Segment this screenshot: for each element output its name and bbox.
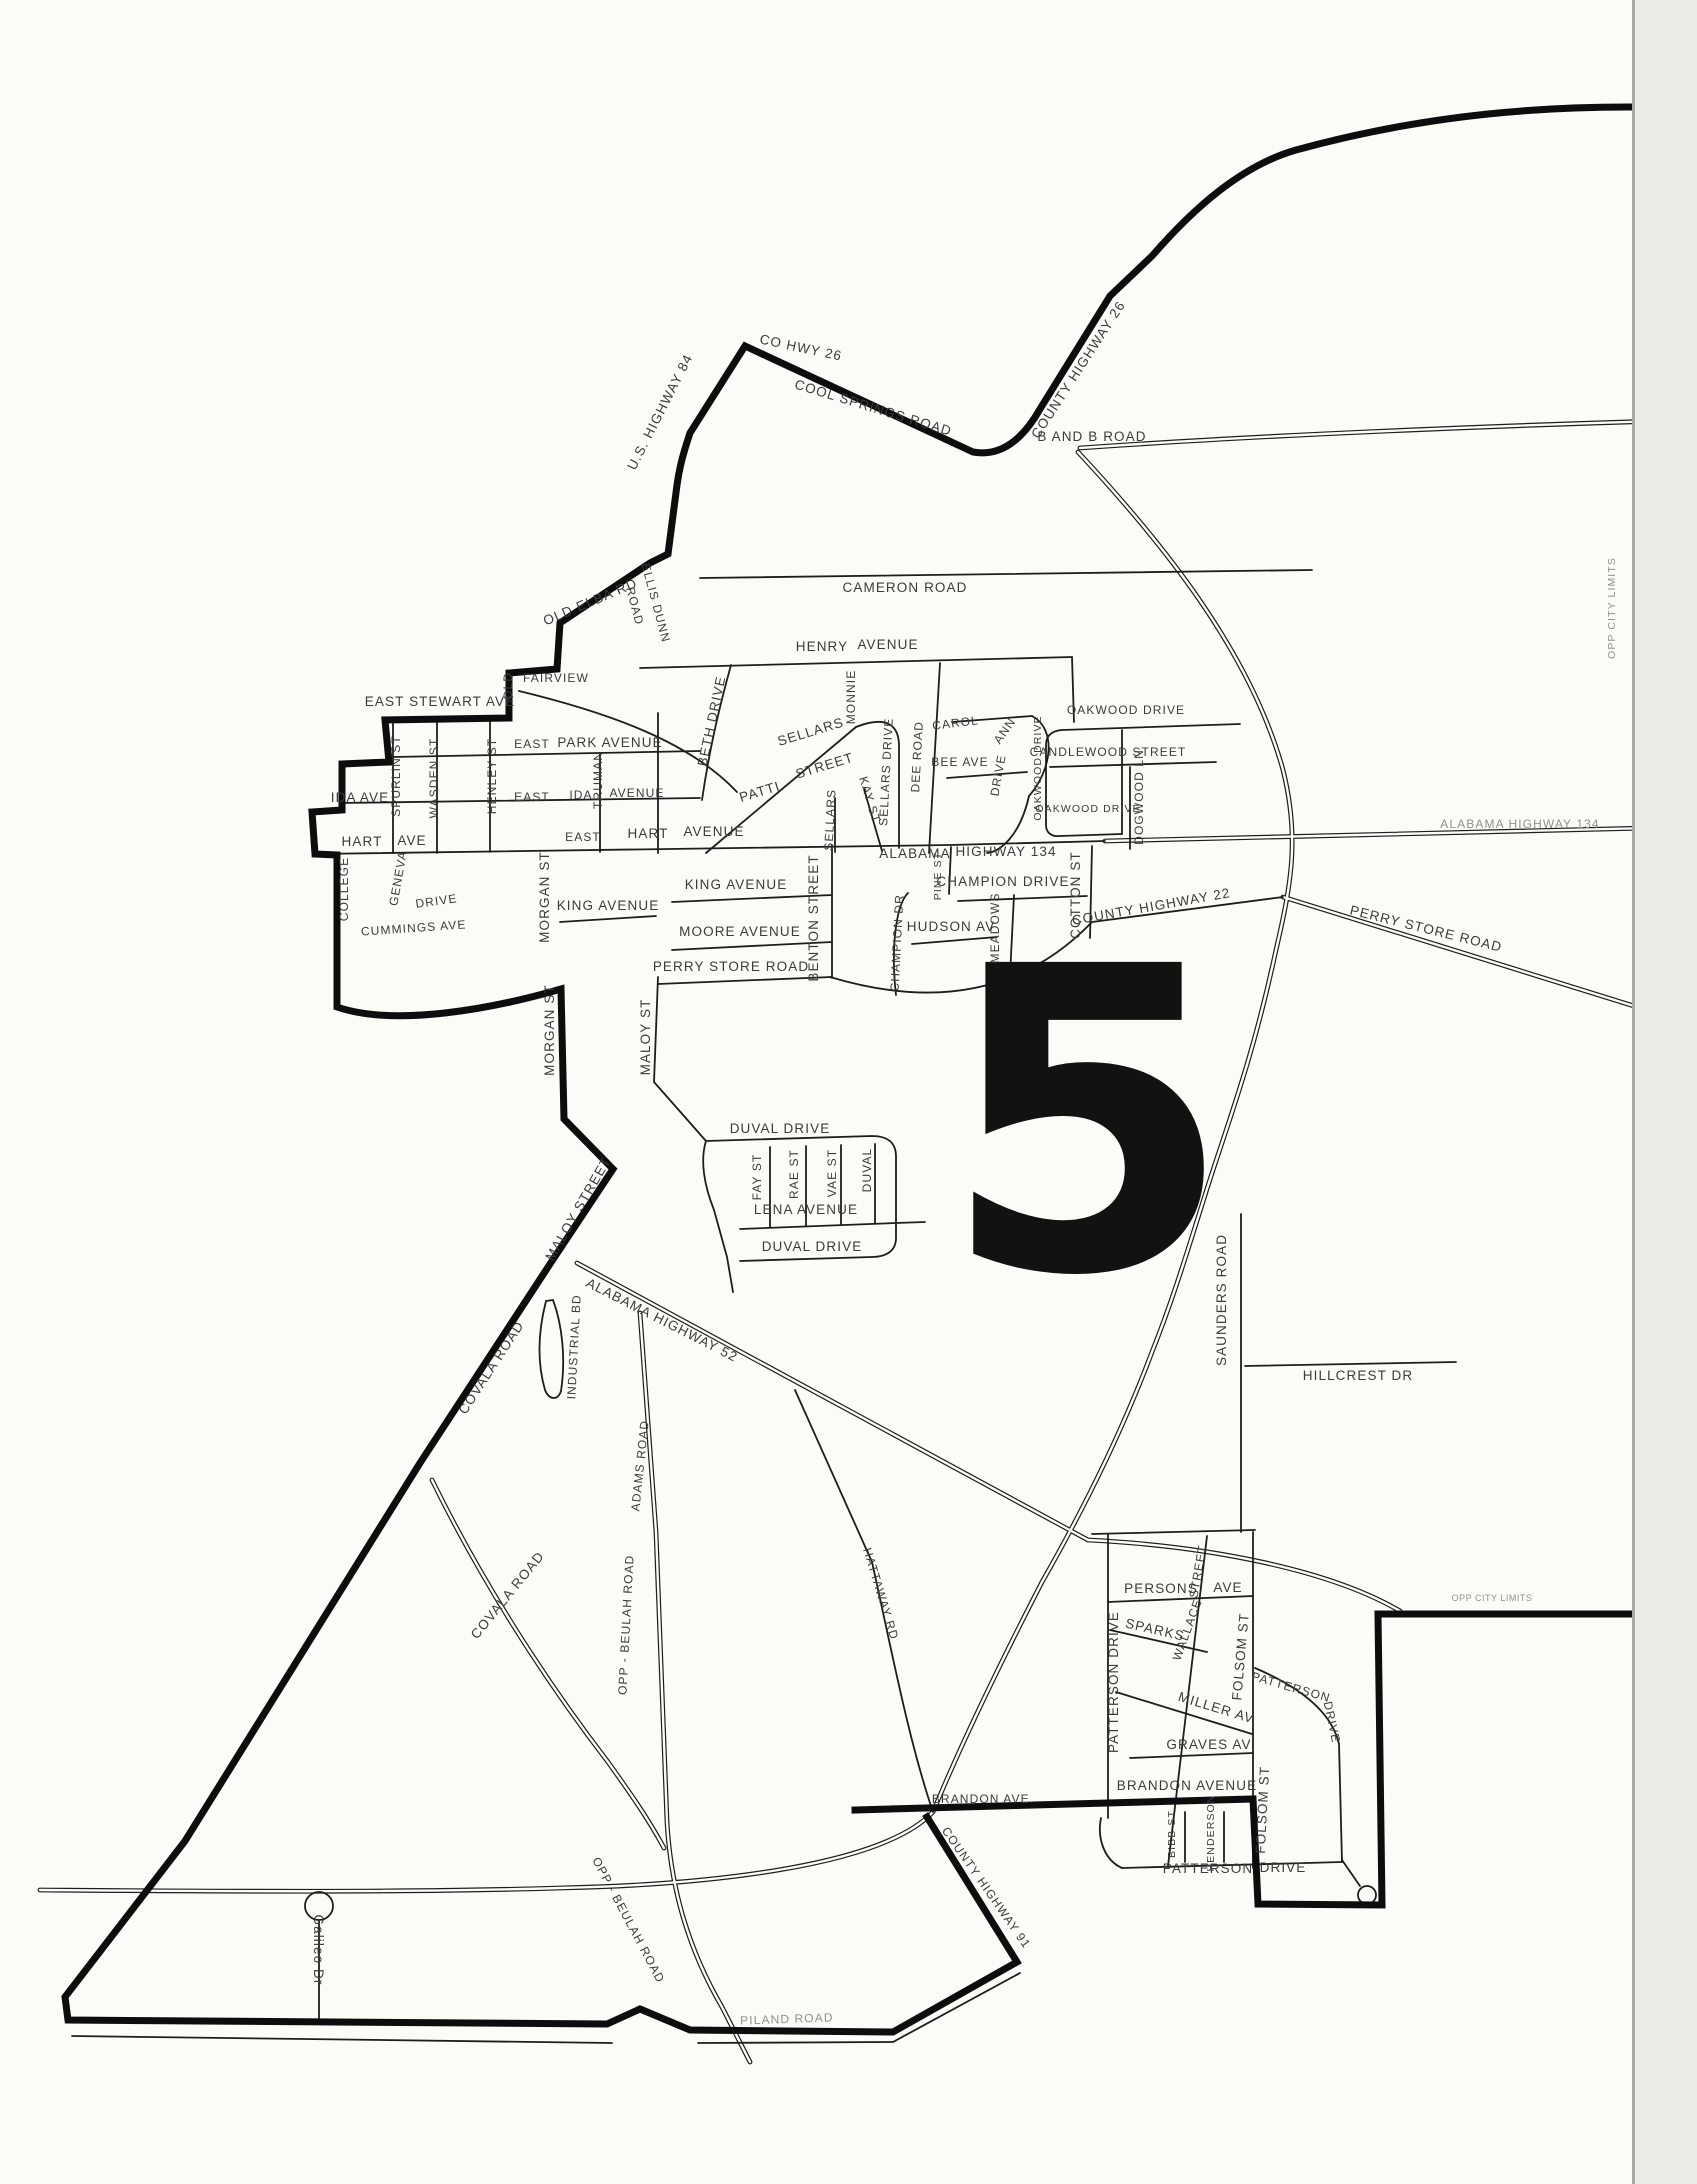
label-fay-st: FAY ST — [750, 1154, 764, 1201]
label-spurlin-st: SPURLIN ST — [389, 735, 403, 817]
label-patterson-diag-drive: DRIVE — [1321, 1700, 1343, 1744]
road-segment — [1062, 724, 1240, 730]
cul-de-sac-circle — [1358, 1886, 1376, 1904]
road-segment — [1130, 1753, 1253, 1758]
label-duval-drive-bottom: DUVAL DRIVE — [762, 1239, 863, 1254]
label-ann-drive: DRIVE — [988, 753, 1009, 797]
label-perry-store-road-east: PERRY STORE ROAD — [1348, 902, 1503, 954]
label-ave-west: AVE — [397, 833, 426, 848]
label-morgan-st-lower: MORGAN ST — [542, 984, 557, 1076]
label-adams-road: ADAMS ROAD — [628, 1419, 652, 1512]
label-folsom-st-lower: FOLSOM ST — [1253, 1765, 1273, 1854]
label-morgan-st-upper: MORGAN ST — [537, 851, 552, 943]
road-segment — [72, 2036, 612, 2043]
label-alabama-highway-134-east: ALABAMA HIGHWAY 134 — [1440, 817, 1599, 831]
label-east-hart: EAST — [565, 830, 601, 844]
label-brandon-ave-west: BRANDON AVE. — [932, 1792, 1034, 1806]
label-patterson-diag: PATTERSON — [1250, 1669, 1332, 1705]
label-folsom-st-upper: FOLSOM ST — [1229, 1612, 1252, 1701]
label-patterson-bottom: PATTERSON — [1163, 1861, 1253, 1876]
label-wallace-street-word: STREET — [1186, 1544, 1209, 1600]
label-street-diag: STREET — [794, 750, 856, 782]
label-sellars-vertical: SELLARS — [821, 789, 838, 851]
road-segment — [1108, 1596, 1253, 1602]
label-champion-drive: CHAMPION DRIVE — [936, 874, 1069, 889]
label-hart: HART — [628, 826, 669, 841]
label-saunders-road: SAUNDERS ROAD — [1214, 1234, 1229, 1366]
label-opp-beulah-road-diag: OPP - BEULAH ROAD — [589, 1855, 667, 1986]
district-number: 5 — [941, 879, 1233, 1368]
road-segment — [1092, 1530, 1255, 1534]
label-oakwood-drive-top: OAKWOOD DRIVE — [1067, 703, 1185, 717]
label-henderson: HENDERSON — [1205, 1795, 1217, 1872]
label-ann: ANN — [991, 715, 1019, 746]
label-opp-city-limits-mid: OPP CITY LIMITS — [1452, 1593, 1533, 1603]
label-college: COLLEGE — [337, 857, 351, 921]
label-sellars-drive: SELLARS DRIVE — [876, 717, 896, 826]
road-segment — [560, 916, 656, 922]
label-ellis-dunn-road: ROAD — [623, 585, 647, 626]
road-segment — [795, 1390, 933, 1812]
label-b-and-b-road: B AND B ROAD — [1037, 429, 1146, 444]
label-east-ida: EAST — [514, 790, 550, 804]
road-segment — [1245, 1362, 1456, 1366]
road-segment — [539, 1300, 563, 1398]
label-duval-vertical: DUVAL — [860, 1148, 874, 1193]
label-highway-134: HIGHWAY 134 — [955, 844, 1056, 859]
label-henry-avenue: AVENUE — [857, 637, 918, 652]
label-moore-avenue: MOORE AVENUE — [679, 924, 801, 939]
label-truman: TRUMAN — [591, 751, 605, 809]
label-rae-st: RAE ST — [787, 1149, 801, 1199]
district-5-map: 5 CO HWY 26 COOL SPRINGS ROAD COUNTY HIG… — [0, 0, 1697, 2184]
road-segment — [703, 1141, 733, 1292]
label-ellis-dunn: ELLIS DUNN — [639, 562, 674, 645]
label-bibb-st: BIBB ST — [1166, 1810, 1178, 1858]
label-lena-avenue: LENA AVENUE — [754, 1202, 858, 1217]
label-covala-road-lower: COVALA ROAD — [468, 1549, 548, 1642]
label-duval-drive-top: DUVAL DRIVE — [730, 1121, 831, 1136]
label-henry: HENRY — [796, 639, 849, 654]
road-segment — [947, 772, 1027, 778]
label-cameron-road: CAMERON ROAD — [843, 580, 968, 595]
label-champion-dr: CHAMPION DR — [887, 894, 906, 992]
label-benton-street: BENTON STREET — [806, 854, 821, 981]
page-gutter-shadow — [1632, 0, 1697, 2184]
label-bee-ave: BEE AVE — [931, 755, 989, 769]
label-county-highway-26: COUNTY HIGHWAY 26 — [1028, 298, 1128, 441]
label-fairview: FAIRVIEW — [523, 671, 589, 685]
label-vae-st: VAE ST — [825, 1149, 839, 1197]
label-east-stewart-ave: EAST STEWART AVE — [365, 694, 515, 709]
label-henley-st: HENLEY ST — [485, 738, 499, 814]
label-park-avenue: PARK AVENUE — [557, 735, 662, 750]
label-persons-ave: AVE — [1213, 1580, 1242, 1595]
label-maloy-st: MALOY ST — [638, 999, 653, 1076]
road-segment — [640, 657, 1072, 668]
label-graves-av: GRAVES AV — [1166, 1737, 1251, 1752]
road-segment — [654, 977, 706, 1141]
label-geneva: GENEVA — [386, 850, 409, 907]
boundary-line — [65, 107, 1684, 2032]
district-map-page: 5 CO HWY 26 COOL SPRINGS ROAD COUNTY HIG… — [0, 0, 1697, 2184]
label-beth-drive: BETH DRIVE — [695, 675, 729, 768]
label-cool-springs-road: COOL SPRINGS ROAD — [793, 377, 954, 439]
label-perry-store-road-west: PERRY STORE ROAD — [653, 959, 809, 974]
label-hattaway-rd: HATTAWAY RD — [860, 1546, 901, 1642]
label-oakwood-drive-bottom: OAKWOOD DRIVE — [1035, 803, 1140, 815]
road-segment — [1100, 1818, 1122, 1868]
label-carol: CAROL — [931, 713, 979, 733]
label-hillcrest-dr: HILLCREST DR — [1303, 1368, 1413, 1383]
label-ida-avenue: AVENUE — [609, 786, 664, 800]
road-segment — [700, 570, 1312, 578]
label-maloy-street: MALOY STREET — [542, 1154, 614, 1263]
district-boundary — [65, 107, 1695, 2032]
label-hart-avenue: AVENUE — [683, 824, 744, 839]
highway-centerlines — [40, 420, 1692, 2062]
road-segment — [740, 1222, 925, 1229]
label-brandon-avenue: BRANDON AVENUE — [1117, 1778, 1257, 1793]
label-piland-road: PILAND ROAD — [740, 2010, 834, 2027]
label-county-highway-91: COUNTY HIGHWAY 91 — [939, 1824, 1034, 1951]
label-king-avenue-east: KING AVENUE — [685, 877, 788, 892]
label-covala-road-upper: COVALA ROAD — [456, 1318, 527, 1417]
label-king-avenue-west: KING AVENUE — [557, 898, 660, 913]
label-patti: PATTI — [738, 778, 782, 805]
label-cummings-ave: CUMMINGS AVE — [361, 917, 467, 938]
label-galileo-dr: Galileo Dr — [311, 1914, 326, 1985]
label-east-park: EAST — [514, 737, 550, 751]
label-hart-west: HART — [342, 834, 383, 849]
label-ida: IDA — [569, 788, 592, 802]
label-alabama-highway-52: ALABAMA HIGHWAY 52 — [584, 1275, 741, 1365]
label-ida-ave-west: IDA AVE — [331, 790, 389, 805]
label-opp-city-limits-top: OPP CITY LIMITS — [1606, 557, 1618, 659]
label-patterson-drive-left: PATTERSON DRIVE — [1106, 1611, 1121, 1753]
label-opp-beulah-road-vertical: OPP - BEULAH ROAD — [615, 1554, 636, 1695]
label-industrial-bd: INDUSTRIAL BD — [564, 1294, 583, 1400]
label-meadows: MEADOWS — [988, 892, 1002, 963]
label-candlewood-street: CANDLEWOOD STREET — [1030, 745, 1187, 759]
label-geneva-drive: DRIVE — [415, 891, 459, 911]
street-labels: 5 CO HWY 26 COOL SPRINGS ROAD COUNTY HIG… — [311, 298, 1618, 2028]
cul-de-sac-stem — [1342, 1860, 1360, 1886]
label-monnie: MONNIE — [844, 670, 858, 725]
label-old-elba-rd: OLD ELBA RD — [541, 575, 640, 628]
highway-lines — [40, 420, 1692, 2062]
label-dogwood-ln: DOGWOOD LN — [1132, 749, 1146, 845]
road-segment — [1080, 420, 1692, 448]
label-dee-road: DEE ROAD — [908, 721, 926, 793]
label-patterson-bottom-drive: DRIVE — [1260, 1860, 1307, 1875]
label-wasden-st: WASDEN ST — [427, 738, 441, 819]
label-hudson-av: HUDSON AV — [907, 919, 995, 934]
